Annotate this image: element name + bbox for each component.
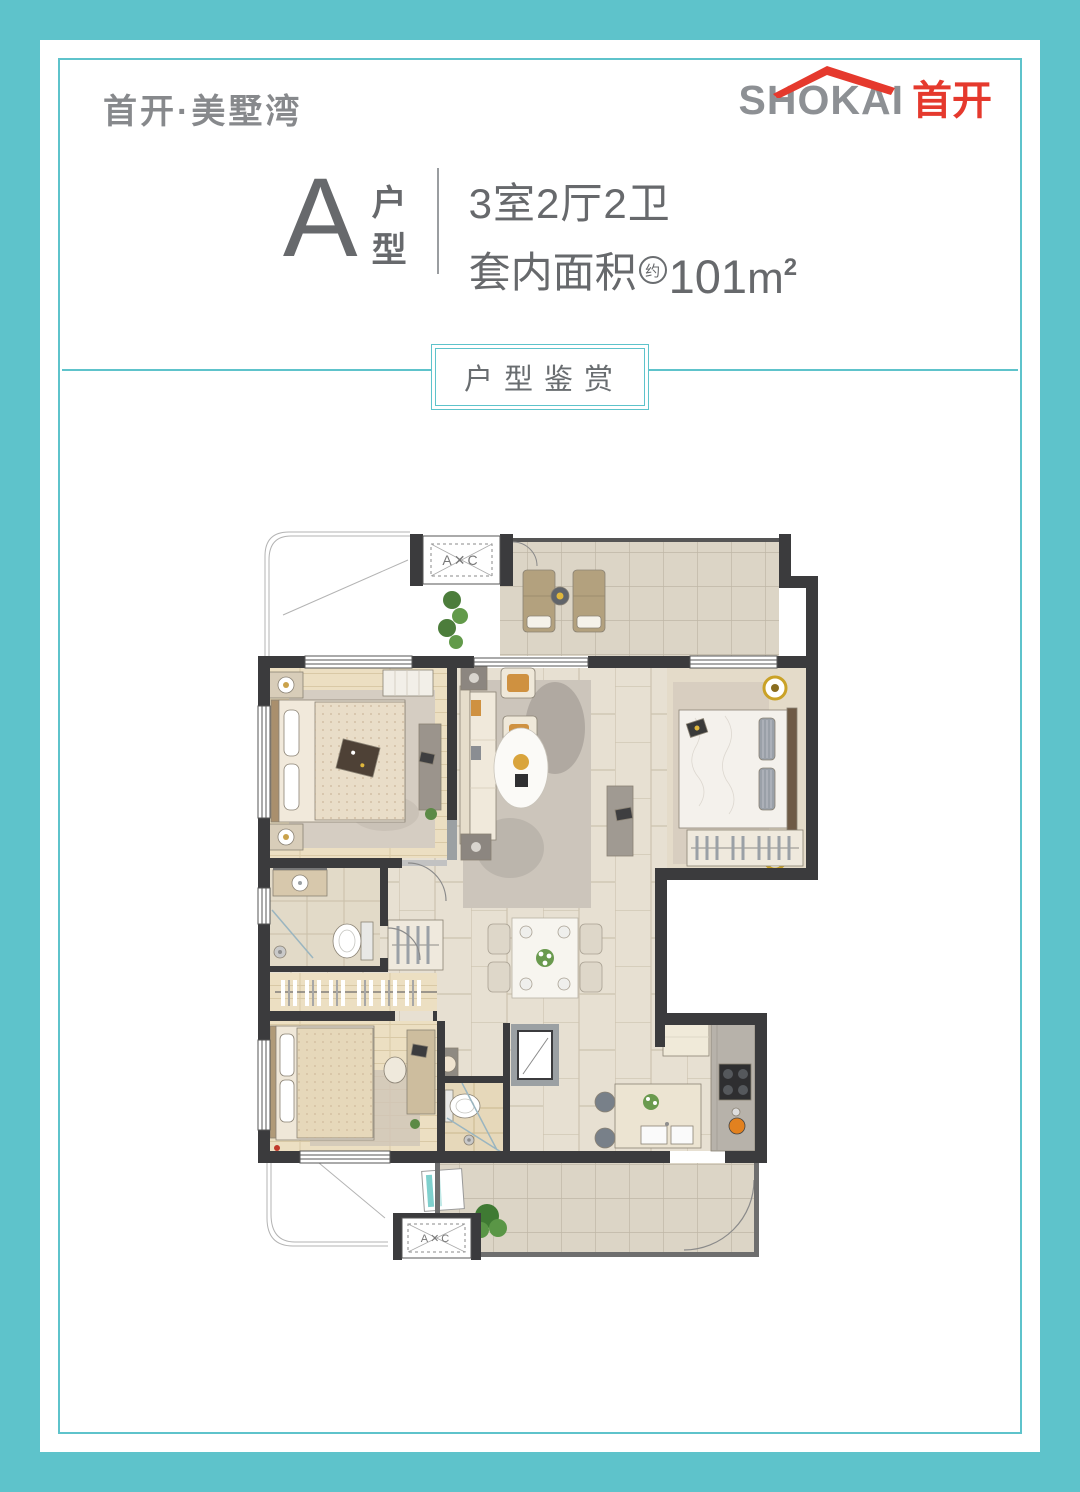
shower-niche (511, 1024, 559, 1086)
plant-small (410, 1119, 420, 1129)
lounge-chair (523, 570, 555, 632)
unit-type-char-bottom: 型 (372, 227, 407, 274)
nightstand (269, 672, 303, 698)
bed (271, 700, 405, 822)
pillow (759, 768, 775, 810)
wardrobe (687, 830, 803, 866)
armchair (501, 668, 535, 698)
bedroom-bottom (270, 1026, 435, 1151)
floor-plan-svg: A✕C A✕C (255, 518, 840, 1290)
sofa (460, 686, 496, 844)
poster-page: 首开·美墅湾 SHOKAI 首开 A 户 型 3室2厅2卫 套内面积 约 101… (0, 0, 1080, 1492)
pillow (759, 718, 775, 760)
area-value: 101 (669, 255, 747, 300)
side-table (461, 834, 491, 860)
wok (729, 1118, 745, 1134)
nightstand (269, 824, 303, 850)
chair (488, 924, 510, 954)
bench (383, 670, 433, 696)
master-bedroom (269, 670, 441, 850)
chair (488, 962, 510, 992)
area-unit: m (747, 258, 784, 300)
chair (580, 924, 602, 954)
coffee-table (494, 728, 548, 808)
section-label-box-inner: 户型鉴赏 (435, 348, 645, 406)
balcony-top-wall (513, 538, 779, 542)
room-spec: 3室2厅2卫 (469, 170, 797, 231)
brand-logo-script: 首开·美墅湾 (103, 84, 302, 133)
toilet (333, 922, 373, 960)
section-label: 户型鉴赏 (464, 364, 624, 396)
stool (595, 1128, 615, 1148)
lamp (764, 677, 786, 699)
entry-door-panel (422, 1169, 465, 1212)
corp-logo-cn: 首开 (912, 81, 992, 121)
unit-specs: 3室2厅2卫 套内面积 约 101 m 2 (469, 170, 797, 300)
window (690, 656, 777, 668)
stool (595, 1092, 615, 1112)
area-unit-sup: 2 (784, 254, 797, 282)
window (258, 888, 270, 924)
section-label-box: 户型鉴赏 (431, 344, 649, 410)
bed (270, 1026, 374, 1140)
ac-unit-bottom: A✕C (393, 1213, 481, 1260)
approx-badge: 约 (639, 256, 667, 284)
side-table (461, 666, 487, 690)
dresser (419, 724, 441, 820)
terrace-outline-top-left (265, 532, 410, 656)
balcony-table (551, 587, 569, 605)
window (258, 1040, 270, 1130)
ac-label-top: A✕C (442, 552, 479, 568)
area-spec: 套内面积 约 101 m 2 (469, 239, 797, 300)
flowers (643, 1094, 659, 1110)
lounge-chair (573, 570, 605, 632)
plant-small (425, 808, 437, 820)
window (300, 1151, 390, 1163)
area-prefix: 套内面积 (469, 239, 637, 300)
tv-console (607, 786, 633, 856)
unit-letter: A (283, 166, 358, 269)
flowers (536, 949, 554, 967)
bed (679, 708, 797, 836)
vanity (273, 869, 327, 896)
balcony-plant (438, 591, 468, 649)
sliding-door (474, 658, 588, 666)
corp-logo: SHOKAI 首开 (739, 80, 992, 121)
wardrobe-small (388, 920, 443, 970)
stove (719, 1064, 751, 1100)
unit-type-char-top: 户 (372, 180, 407, 227)
ac-label-bottom: A✕C (421, 1233, 452, 1245)
window (258, 706, 270, 818)
title-divider (437, 168, 439, 274)
roof-icon (773, 64, 901, 98)
unit-title: A 户 型 3室2厅2卫 套内面积 约 101 m 2 (0, 166, 1080, 300)
chair (580, 962, 602, 992)
window (305, 656, 412, 668)
unit-type-label: 户 型 (372, 180, 407, 275)
